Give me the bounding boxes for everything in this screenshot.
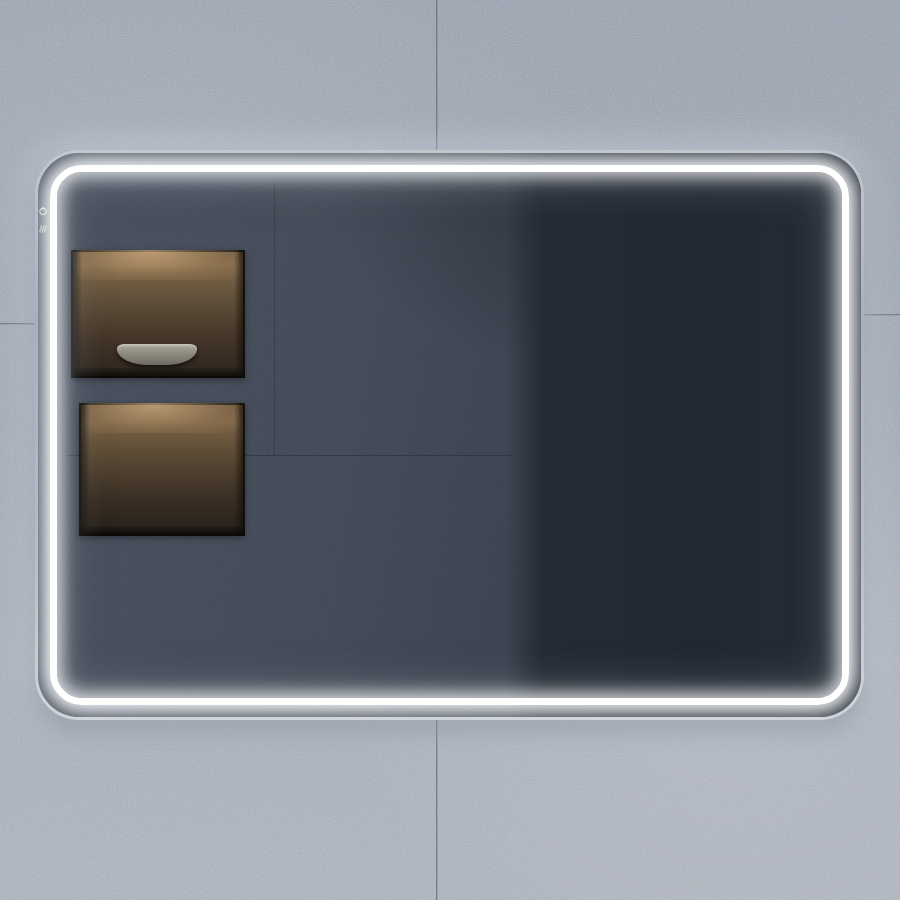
autumn-leaves: [38, 165, 52, 175]
niche-light: [77, 250, 239, 280]
wall-seam-horizontal-left: [0, 323, 40, 325]
mirror-face: [38, 153, 861, 717]
upper-niche: [71, 250, 245, 378]
power-icon: [38, 206, 48, 216]
led-mirror: [35, 150, 864, 720]
niche-side: [79, 403, 90, 536]
niche-side: [71, 250, 82, 378]
autumn-leaves: [38, 184, 54, 194]
product-photo: [0, 0, 900, 900]
niche-side: [234, 403, 245, 536]
autumn-leaves: [38, 153, 58, 165]
lower-niche: [79, 403, 245, 536]
stone-bowl: [117, 344, 197, 365]
autumn-leaves: [38, 194, 50, 203]
reflected-wall-seam-v: [274, 183, 276, 455]
tree-branch: [39, 153, 95, 160]
niche-light: [85, 403, 239, 433]
niche-side: [234, 250, 245, 378]
defog-icon: [38, 224, 48, 234]
wall-seam-vertical-top: [436, 0, 438, 152]
wall-seam-horizontal-right: [858, 314, 900, 316]
wall-seam-vertical-bottom: [436, 716, 438, 900]
niche-shelf: [79, 526, 245, 536]
autumn-leaves: [38, 175, 50, 184]
niche-shelf: [71, 368, 245, 378]
reflection-dark-panels: [506, 153, 861, 717]
